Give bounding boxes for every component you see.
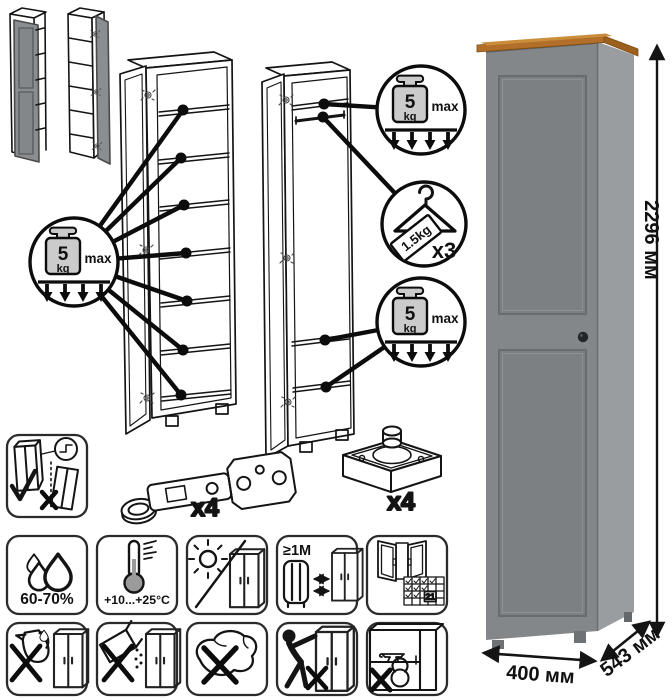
height-dimension: 2296 мм [640,200,662,280]
front-left-foot [492,640,504,649]
door-hinge-icon: x4 [116,451,297,528]
humidity-icon: 60-70% [7,536,87,614]
no-push-drag-icon [277,623,357,695]
clothes-hanger-icon: 1.5kg x3 [382,182,466,266]
door-lower-panel [499,350,586,616]
rear-foot [624,612,632,622]
door-knob [578,332,588,342]
shelf-load-badge [30,218,118,306]
diagram-canvas: 5 kg max [0,0,672,700]
no-abrasive-powder-icon [97,621,180,695]
hanging-cabinet-drawing [262,62,354,458]
bottom-shelf-load-badge [377,278,465,366]
top-shelf-load-badge [377,66,465,154]
hinge-count-label: x4 [191,494,219,522]
min-1m-from-heater-icon: ≥1М [277,536,363,614]
distance-label: ≥1М [283,543,311,559]
no-direct-sunlight-icon [187,536,267,614]
calendar-day-label: 21 [426,591,436,601]
no-wet-cloth-icon [187,623,267,695]
wardrobe-side-panel [598,42,634,631]
front-right-foot [574,631,586,643]
door-upper-panel [499,76,586,314]
ventilation-21-days-icon: 21 [367,536,447,614]
depth-dimension: 543 мм [596,623,664,682]
closed-cabinet-thumbnail [10,8,46,162]
hanger-count-label: x3 [432,238,456,263]
wall-anchor-warning-icon [7,435,87,517]
adjustable-foot-icon: x4 [343,427,441,517]
foot-count-label: x4 [387,488,415,516]
no-heavy-load-icon [367,623,447,695]
width-dimension: 400 мм [505,662,575,689]
open-cabinet-thumbnail [68,8,110,164]
humidity-label: 60-70% [20,591,74,608]
temperature-range-icon: +10...+25°C [97,536,177,614]
instruction-sheet: 5 kg max [0,0,672,700]
no-spill-liquids-icon [7,623,88,695]
temperature-label: +10...+25°C [104,593,170,607]
wardrobe-render [477,34,638,650]
